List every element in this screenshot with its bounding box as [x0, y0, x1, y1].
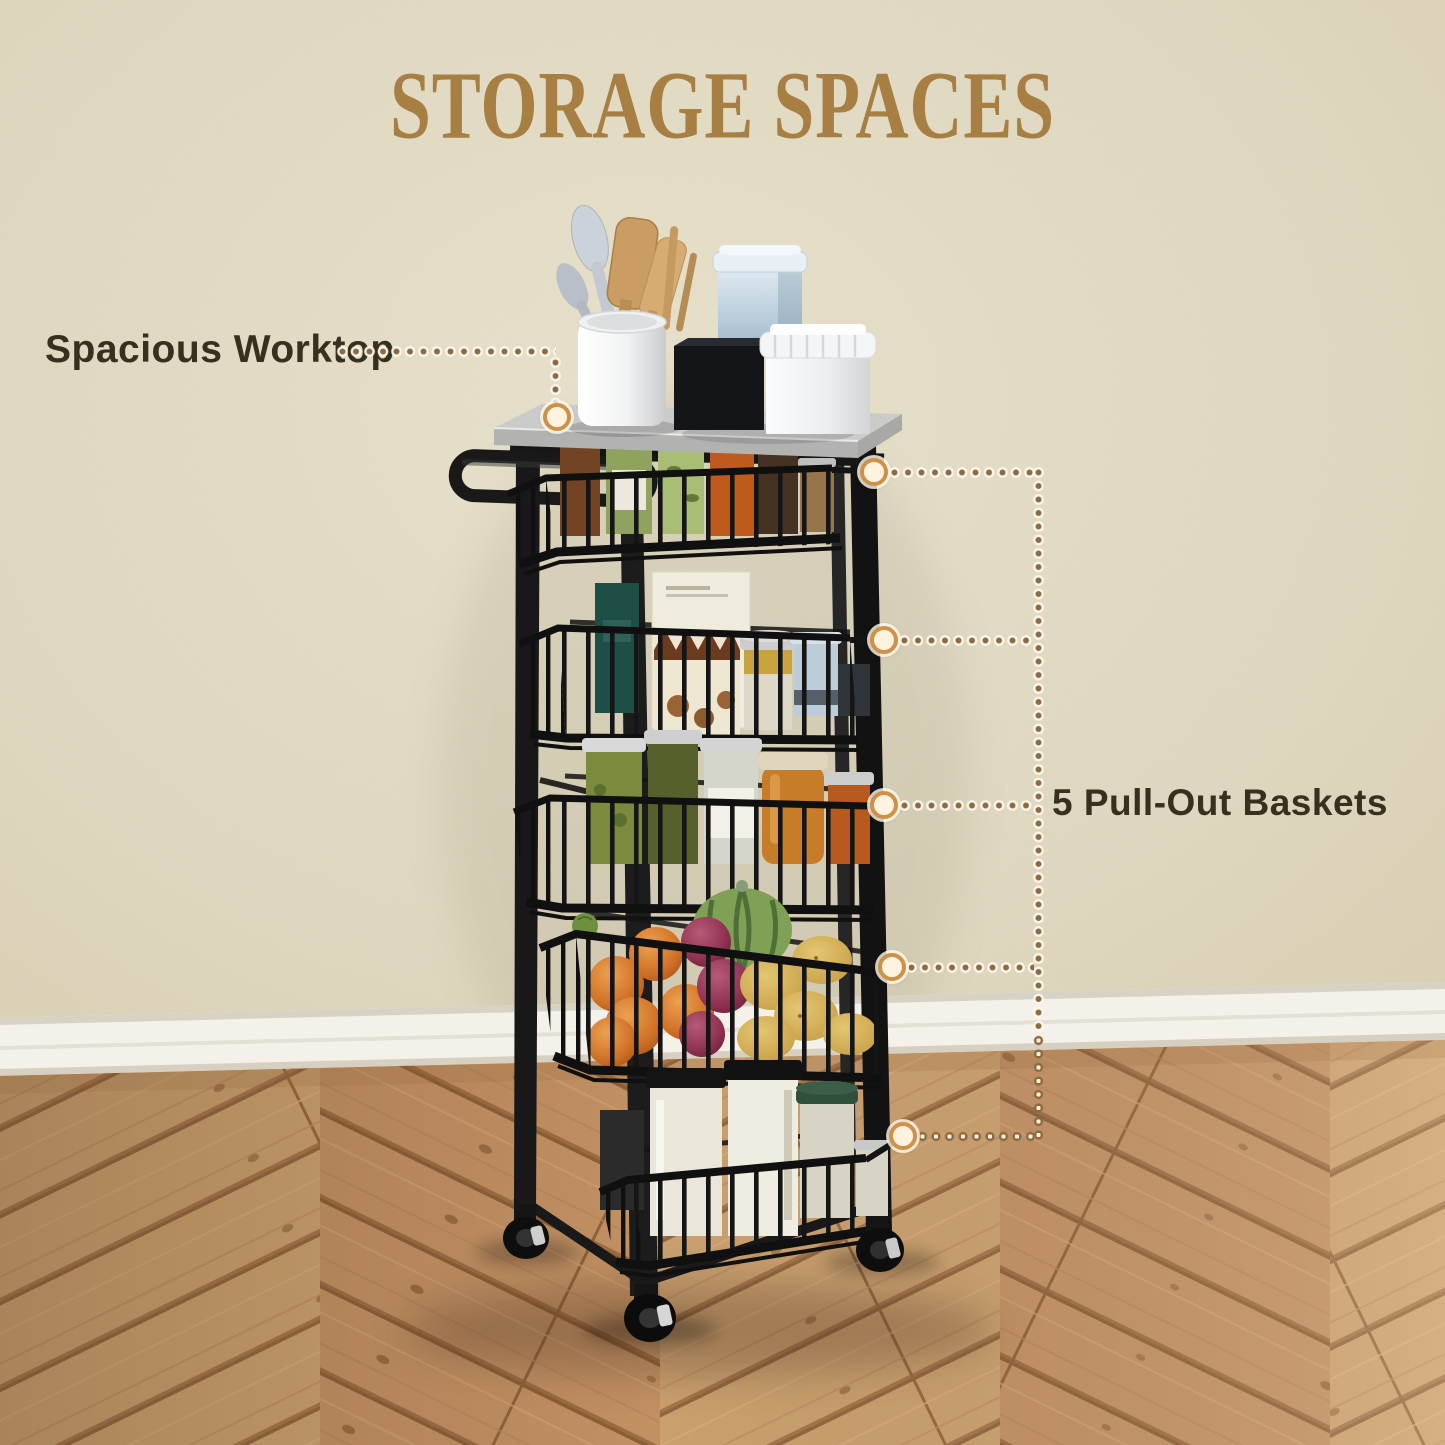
basket-5-marker-dot — [889, 1122, 917, 1150]
basket-3-branch — [898, 799, 1034, 812]
basket-5-branch — [916, 1130, 1034, 1143]
basket-4-marker-dot — [878, 953, 906, 981]
worktop-marker-dot — [543, 403, 571, 431]
product-infographic: STORAGE SPACES Spacious Worktop 5 Pull-O… — [0, 0, 1445, 1445]
basket-1-branch — [888, 466, 1034, 479]
basket-2-branch — [898, 634, 1034, 647]
annotation-overlay: STORAGE SPACES Spacious Worktop 5 Pull-O… — [0, 0, 1445, 1445]
baskets-connector-vertical — [1032, 466, 1045, 1034]
page-title: STORAGE SPACES — [145, 49, 1301, 160]
basket-1-marker-dot — [860, 458, 888, 486]
worktop-connector-vertical — [549, 356, 562, 406]
basket-3-marker-dot — [870, 791, 898, 819]
basket-4-branch — [905, 961, 1034, 974]
baskets-connector-vertical-lower — [1032, 1034, 1045, 1143]
basket-2-marker-dot — [870, 626, 898, 654]
baskets-callout-label: 5 Pull-Out Baskets — [1052, 782, 1388, 824]
worktop-connector-horizontal — [336, 345, 556, 358]
